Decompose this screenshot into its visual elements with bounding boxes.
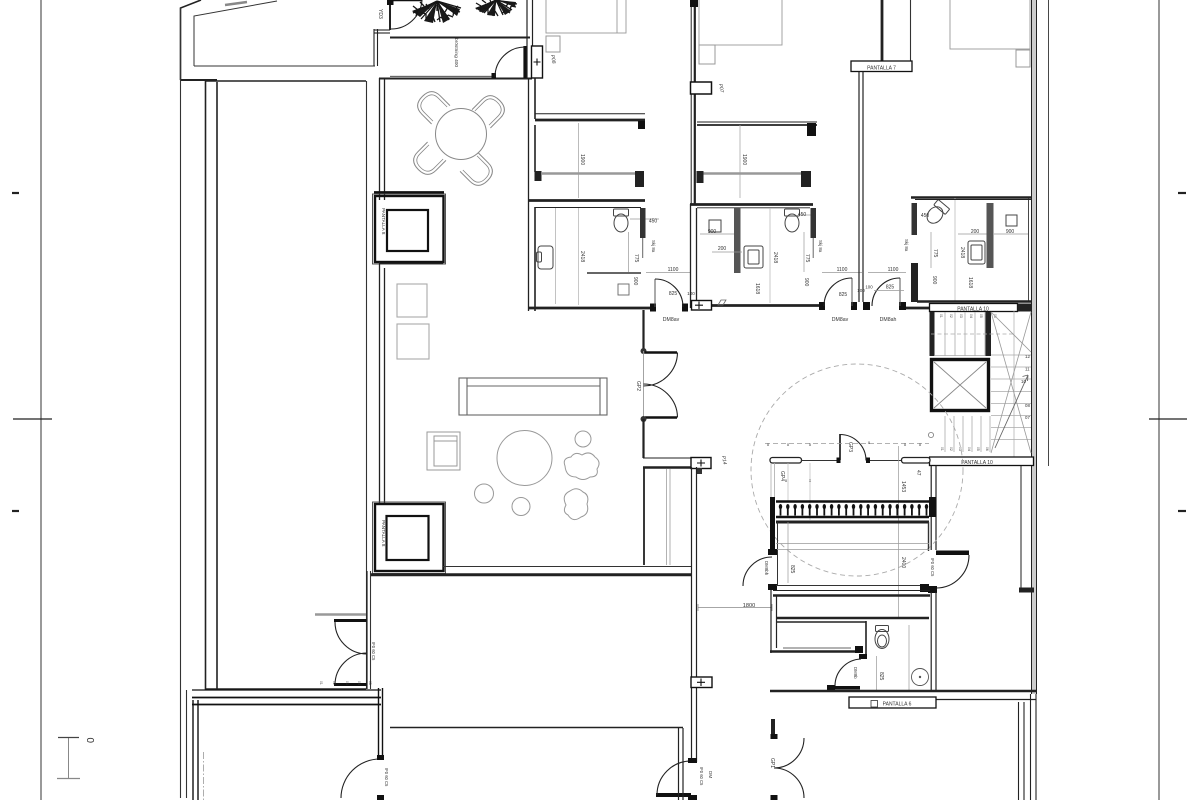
svg-text:PANTALLA 8: PANTALLA 8: [381, 520, 386, 547]
svg-text:01: 01: [939, 314, 943, 318]
svg-text:100: 100: [687, 291, 695, 296]
svg-text:05: 05: [976, 447, 980, 451]
svg-text:12: 12: [1025, 354, 1030, 359]
svg-text:05: 05: [368, 681, 372, 685]
svg-text:775: 775: [804, 254, 810, 263]
svg-text:Skj 8a: Skj 8a: [904, 239, 909, 252]
svg-text:IF0 60 C5: IF0 60 C5: [384, 768, 389, 787]
svg-text:1618: 1618: [754, 283, 760, 294]
svg-text:IF0 60 C5: IF0 60 C5: [371, 642, 376, 661]
svg-text:02: 02: [949, 447, 953, 451]
svg-text:Skj 8a: Skj 8a: [818, 240, 823, 253]
svg-text:0: 0: [86, 737, 97, 743]
svg-text:PANTALLA 6: PANTALLA 6: [883, 702, 912, 708]
svg-text:2418: 2418: [772, 252, 778, 263]
svg-text:825: 825: [878, 672, 884, 681]
svg-text:1800: 1800: [743, 603, 755, 609]
svg-text:1100: 1100: [668, 267, 679, 273]
svg-text:1618: 1618: [967, 277, 973, 288]
svg-text:1100: 1100: [888, 267, 899, 273]
svg-text:01: 01: [940, 447, 944, 451]
svg-text:825: 825: [886, 285, 895, 291]
svg-text:IF0 60 C5: IF0 60 C5: [699, 767, 704, 786]
svg-text:1100: 1100: [837, 267, 848, 273]
svg-text:900: 900: [632, 277, 638, 286]
svg-text:100: 100: [865, 285, 873, 290]
svg-text:PANTALLA 7: PANTALLA 7: [867, 66, 896, 72]
svg-text:200: 200: [971, 229, 980, 235]
svg-text:YD3: YD3: [377, 9, 383, 19]
svg-text:PANTALLA 10: PANTALLA 10: [961, 460, 993, 466]
svg-text:900: 900: [1006, 229, 1015, 235]
svg-text:450: 450: [798, 212, 807, 218]
svg-text:07: 07: [1025, 415, 1030, 420]
svg-text:GP1: GP1: [769, 758, 775, 768]
svg-text:450: 450: [649, 219, 658, 225]
svg-text:900: 900: [803, 278, 809, 287]
svg-text:PANTALLA 10: PANTALLA 10: [957, 307, 989, 313]
svg-text:GP4: GP4: [779, 471, 785, 481]
svg-text:1453: 1453: [900, 481, 906, 492]
svg-text:03: 03: [345, 681, 349, 685]
svg-text:11: 11: [1025, 367, 1030, 372]
svg-text:200: 200: [718, 246, 727, 252]
svg-text:825: 825: [669, 291, 678, 297]
svg-text:1900: 1900: [579, 154, 585, 165]
svg-text:825: 825: [789, 565, 795, 574]
svg-text:900: 900: [931, 276, 937, 285]
svg-text:DM8av: DM8av: [832, 317, 849, 323]
svg-text:Skj 8a: Skj 8a: [651, 240, 656, 253]
svg-text:775: 775: [932, 249, 938, 258]
svg-text:450: 450: [921, 213, 930, 219]
svg-text:05: 05: [979, 314, 983, 318]
svg-text:775: 775: [633, 254, 639, 263]
svg-text:47: 47: [915, 470, 921, 476]
svg-text:08: 08: [1025, 403, 1030, 408]
svg-text:03: 03: [958, 447, 962, 451]
svg-text:03: 03: [959, 314, 963, 318]
svg-text:IF0 60 C5: IF0 60 C5: [930, 558, 935, 577]
svg-text:DM8av: DM8av: [663, 317, 680, 323]
svg-text:1900: 1900: [741, 154, 747, 165]
svg-text:100: 100: [857, 288, 865, 293]
svg-text:GP2: GP2: [635, 381, 641, 391]
svg-text:2418: 2418: [579, 251, 585, 262]
svg-text:DM8b: DM8b: [853, 667, 858, 679]
svg-text:DM8ah: DM8ah: [880, 317, 897, 323]
svg-text:DM8bh: DM8bh: [764, 561, 769, 576]
svg-text:900: 900: [708, 229, 717, 235]
svg-text:04: 04: [969, 314, 973, 318]
svg-text:825: 825: [839, 292, 848, 298]
svg-text:PANTALLA 8: PANTALLA 8: [381, 208, 386, 235]
svg-text:06: 06: [985, 447, 989, 451]
svg-text:10: 10: [1021, 379, 1026, 384]
svg-text:04: 04: [357, 681, 361, 685]
svg-text:02: 02: [949, 314, 953, 318]
svg-text:2418: 2418: [959, 247, 965, 258]
svg-text:02: 02: [332, 681, 336, 685]
svg-text:bröstning 400: bröstning 400: [453, 38, 459, 67]
svg-text:04: 04: [967, 447, 971, 451]
svg-text:2400: 2400: [900, 557, 906, 568]
svg-text:01: 01: [319, 681, 323, 685]
svg-text:DM: DM: [708, 771, 713, 778]
